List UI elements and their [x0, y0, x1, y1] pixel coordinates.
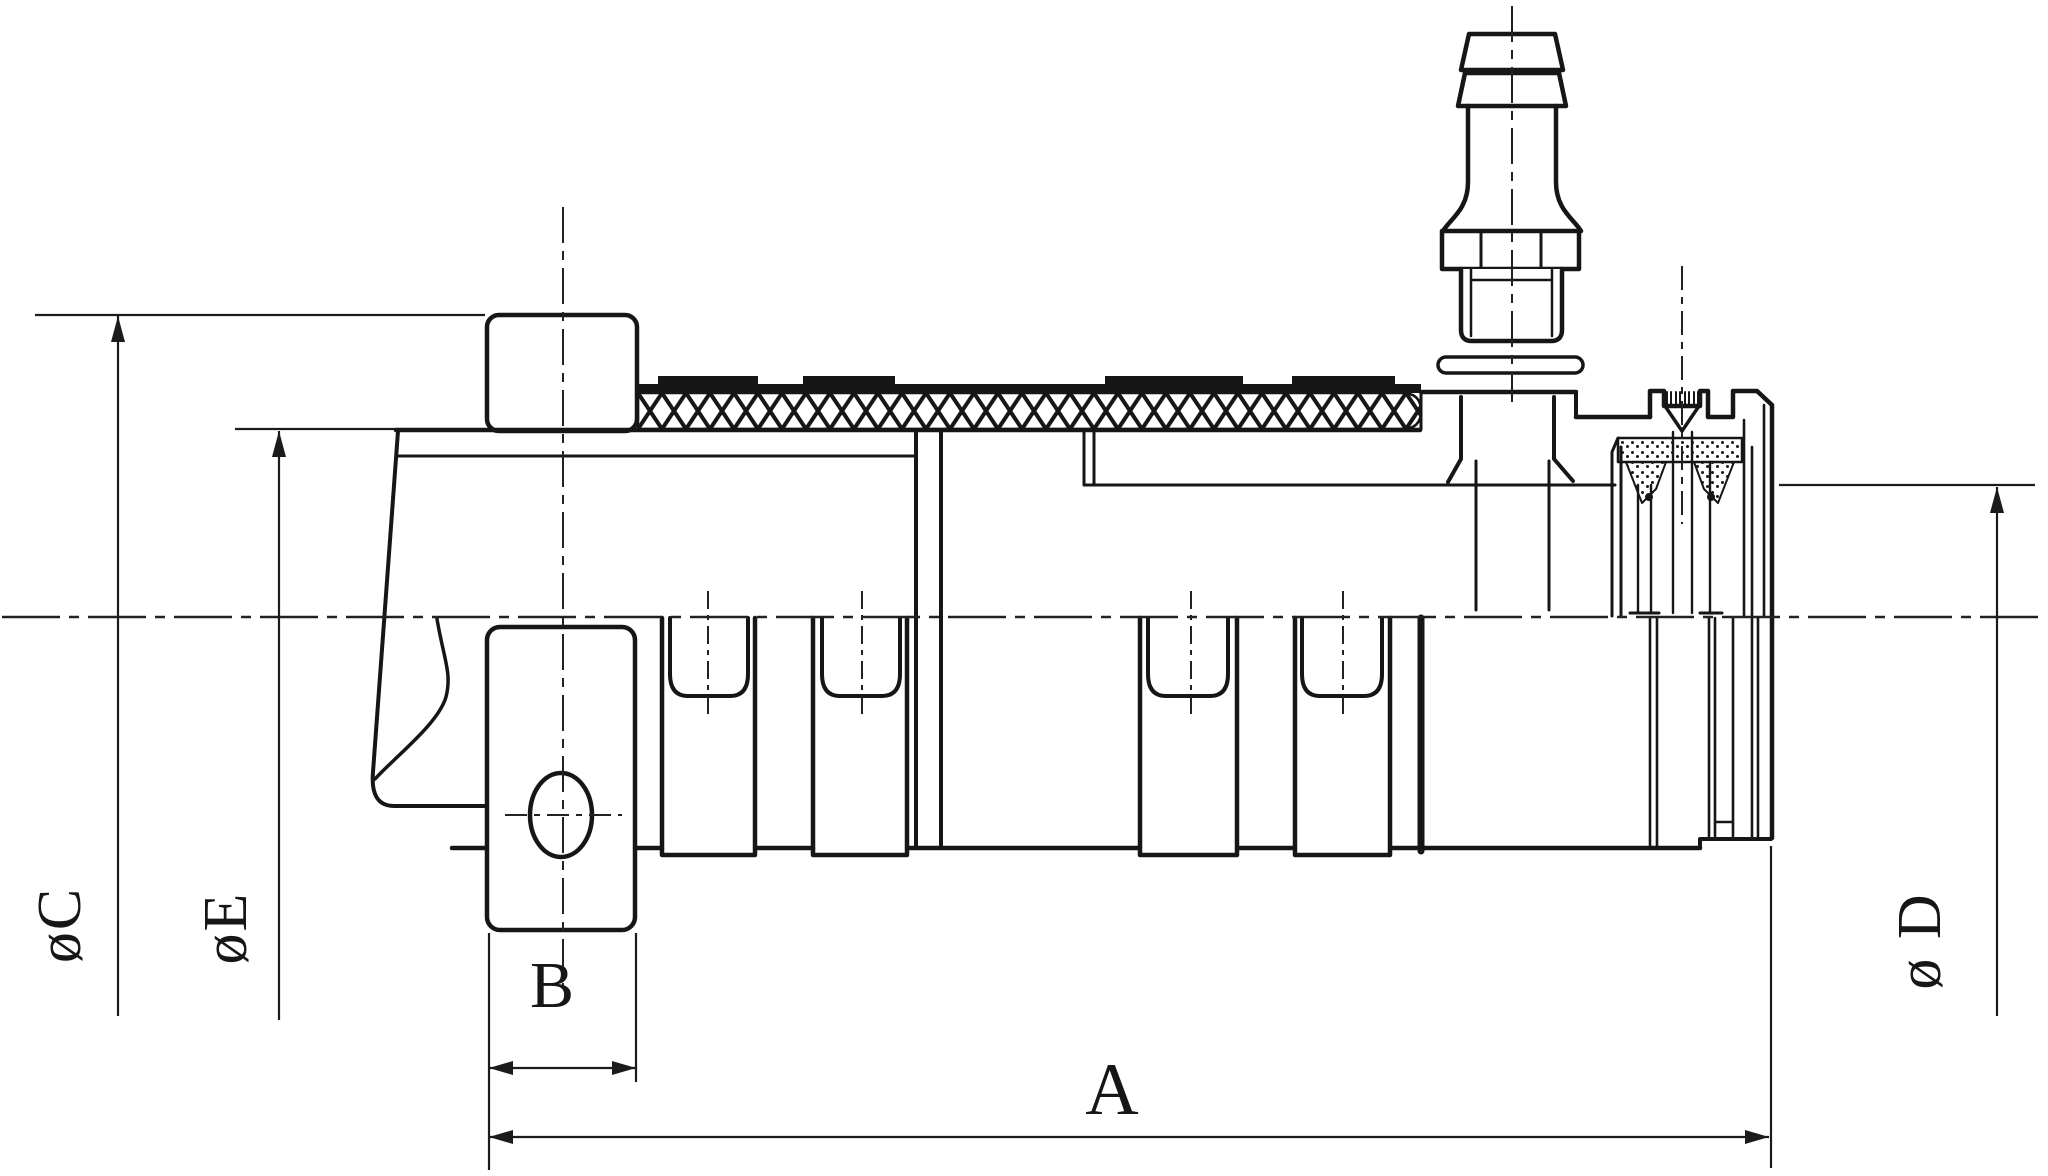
nipple-hex-nut — [1442, 231, 1579, 269]
body-joint — [916, 431, 941, 847]
dimension-label-e: øE — [195, 892, 257, 965]
arrowhead — [489, 1130, 513, 1144]
braided-sleeve-crosshatch — [638, 376, 1421, 429]
end-cap-valve-seals — [1612, 391, 1772, 838]
dimension-label-d: ø D — [1889, 892, 1951, 989]
arrowhead — [272, 431, 286, 457]
clamp-pad — [1292, 376, 1395, 385]
arrowhead — [111, 316, 125, 342]
bottom-outline — [452, 839, 1771, 848]
finger-slot — [1148, 618, 1228, 696]
clamp-pad — [803, 376, 895, 385]
nipple-washer — [1438, 357, 1583, 373]
arrowhead — [1990, 487, 2004, 513]
dimension-label-b: B — [530, 953, 574, 1019]
arrowhead — [1745, 1130, 1769, 1144]
left-flange — [373, 431, 488, 806]
dimension-label-c: øC — [29, 887, 91, 963]
clamp-pad — [658, 376, 758, 385]
dimension-label-a: A — [1085, 1053, 1138, 1127]
finger — [813, 618, 907, 855]
clamp-fingers — [662, 618, 1390, 855]
arrowhead — [489, 1061, 513, 1075]
drawing-canvas: øC øE ø D B A — [0, 0, 2048, 1176]
dimension-c — [35, 315, 485, 1016]
clamp-pad — [1105, 376, 1243, 385]
mounting-bracket — [487, 627, 635, 930]
seal-band — [1618, 438, 1742, 462]
arrowhead — [612, 1061, 636, 1075]
finger — [1140, 618, 1237, 855]
end-rings-outside-view — [1650, 618, 1758, 846]
coupling-section-svg — [0, 0, 2048, 1176]
port-boss — [1448, 397, 1573, 610]
